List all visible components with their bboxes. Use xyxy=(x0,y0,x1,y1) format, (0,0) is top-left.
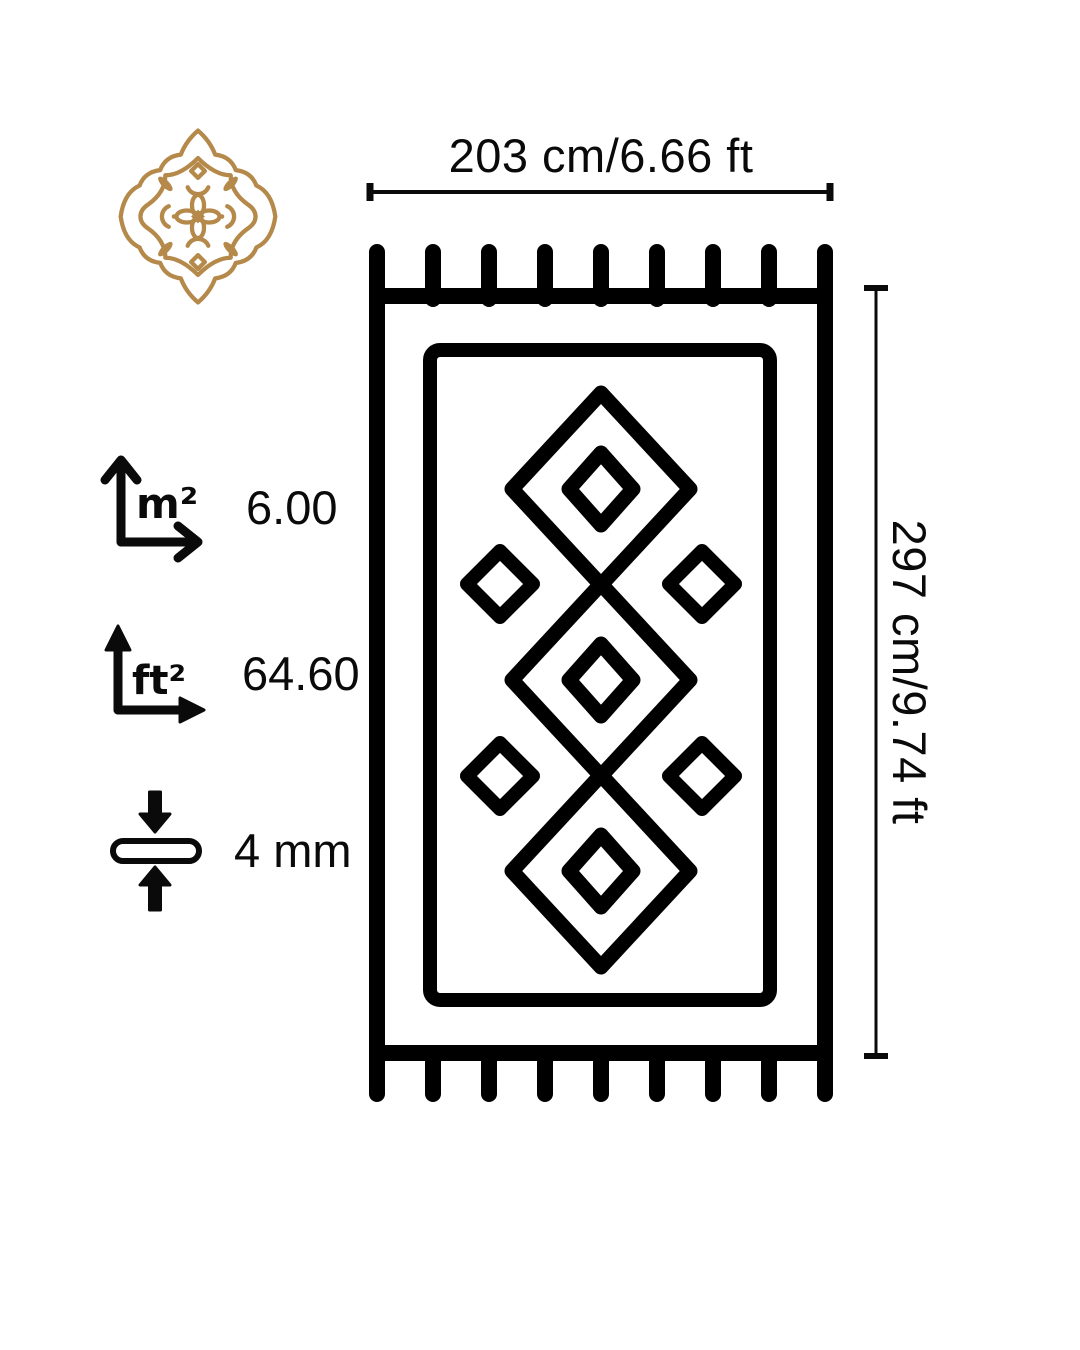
rug-diagram-icon xyxy=(368,243,834,1103)
rug-dimensions-infographic: 203 cm/6.66 ft xyxy=(0,0,1080,1350)
ft2-unit-label: ft² xyxy=(132,658,186,704)
thickness-value: 4 mm xyxy=(234,827,352,874)
thickness-arrow-down xyxy=(140,792,170,832)
width-dimension-label: 203 cm/6.66 ft xyxy=(370,132,832,179)
m2-unit-label: m² xyxy=(136,479,198,528)
medallion-logo-icon xyxy=(112,122,284,311)
area-ft2-value: 64.60 xyxy=(242,650,360,697)
rug-diamond-pattern xyxy=(467,393,735,967)
area-m2-icon: m² xyxy=(98,448,208,570)
thickness-icon xyxy=(106,788,206,916)
area-ft2-icon: ft² xyxy=(100,620,210,732)
area-m2-value: 6.00 xyxy=(246,484,337,531)
thickness-arrow-up xyxy=(140,867,170,910)
width-dimension-line xyxy=(366,181,834,203)
thickness-pill xyxy=(113,841,199,861)
height-dimension-label: 297 cm/9.74 ft xyxy=(886,520,933,825)
